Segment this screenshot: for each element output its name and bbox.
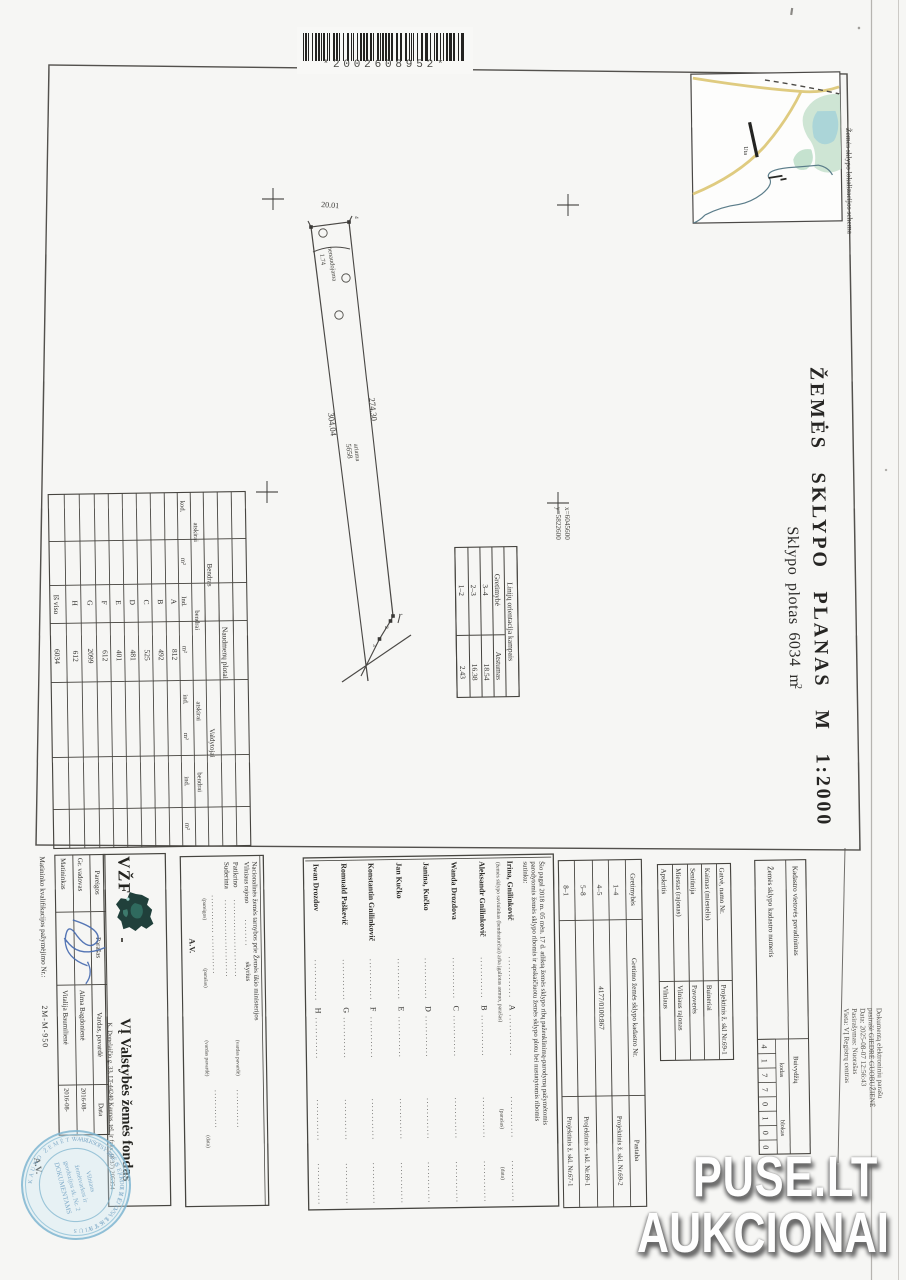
- svg-text:Wanda Drozdova: Wanda Drozdova: [449, 862, 459, 920]
- svg-text:Nacionalinės žemės tarnybos pr: Nacionalinės žemės tarnybos prie Žemės ū…: [250, 861, 261, 1020]
- svg-text:F: F: [369, 1007, 378, 1012]
- svg-text:Vilniaus rajono: Vilniaus rajono: [242, 862, 250, 904]
- svg-text:. . . . . . . . . . . .: . . . . . . . . . . . .: [509, 1097, 518, 1139]
- svg-text:. . . . . . . . . . . .: . . . . . . . . . . . .: [213, 1090, 221, 1129]
- svg-text:(vardas pavardė): (vardas pavardė): [234, 1040, 242, 1076]
- svg-text:274.30: 274.30: [367, 397, 380, 421]
- svg-text:2: 2: [792, 684, 803, 689]
- svg-text:Linijų orientacija kampais: Linijų orientacija kampais: [505, 582, 515, 661]
- svg-text:x=6045600: x=6045600: [563, 507, 571, 540]
- svg-text:Atstumas: Atstumas: [494, 652, 503, 681]
- svg-text:G: G: [85, 600, 94, 606]
- svg-text:2016-08-: 2016-08-: [62, 1088, 69, 1112]
- svg-text:Uta: Uta: [742, 146, 748, 155]
- svg-text:. . . . . . . . . . . . . . .: . . . . . . . . . . . . . . . . . . . . …: [232, 900, 240, 978]
- svg-text:8–1: 8–1: [562, 885, 570, 896]
- svg-text:(data): (data): [499, 1167, 506, 1180]
- svg-text:Vardas, pavardė: Vardas, pavardė: [95, 1012, 104, 1057]
- svg-text:481: 481: [129, 650, 138, 662]
- svg-text:(vardas pavardė): (vardas pavardė): [203, 1040, 211, 1076]
- svg-text:Gretimybės: Gretimybės: [628, 873, 637, 906]
- svg-text:. . . . . . . . . . . .: . . . . . . . . . . . .: [397, 1016, 406, 1058]
- svg-text:Seniūnija: Seniūnija: [689, 868, 697, 895]
- svg-text:B: B: [480, 1005, 489, 1010]
- svg-text:Gretimo žemės sklypo kadastro: Gretimo žemės sklypo kadastro Nr.: [630, 958, 640, 1057]
- svg-text:Kadastro vietovės pavadinimas: Kadastro vietovės pavadinimas: [791, 866, 800, 956]
- svg-text:D: D: [128, 599, 137, 605]
- svg-text:. . . . . . . . . . . .: . . . . . . . . . . . .: [316, 1164, 325, 1206]
- svg-text:304.04: 304.04: [326, 412, 339, 437]
- svg-text:(parašas): (parašas): [498, 1109, 505, 1129]
- svg-text:Konstantin Gnilinkovič: Konstantin Gnilinkovič: [366, 863, 376, 942]
- svg-text:3–4: 3–4: [481, 584, 490, 596]
- svg-text:Apskritis: Apskritis: [660, 868, 668, 894]
- svg-text:1: 1: [397, 613, 403, 616]
- svg-text:. . . . . . . . . . . .: . . . . . . . . . . . .: [370, 1099, 379, 1141]
- svg-text:Data: Data: [97, 1103, 105, 1117]
- svg-text:. . . . . . . . . . . . . . .: . . . . . . . . . . . . . . . . . . . . …: [223, 900, 231, 978]
- svg-text:. . . . . . . . . . . . . . .: . . . . . . . . . . . . . . . . . . . . …: [210, 895, 218, 975]
- svg-text:7: 7: [760, 1073, 769, 1077]
- svg-text:0: 0: [760, 1102, 769, 1106]
- svg-text:Suderinta: Suderinta: [222, 862, 230, 890]
- svg-text:20.01: 20.01: [321, 200, 340, 210]
- svg-text:blokas: blokas: [779, 1120, 786, 1137]
- svg-text:3: 3: [371, 644, 377, 647]
- svg-text:Matininkas: Matininkas: [59, 858, 67, 890]
- svg-text:Pavoverės: Pavoverės: [690, 985, 698, 1014]
- svg-text:. . . . . . . . . . . .: . . . . . . . . . . . .: [369, 1017, 378, 1059]
- svg-text:Žemės sklypo lokalizacijos sch: Žemės sklypo lokalizacijos schema: [844, 128, 856, 235]
- svg-text:1: 1: [761, 1116, 770, 1120]
- svg-text:skyrius: skyrius: [244, 962, 251, 982]
- svg-text:. . . . . . . .: . . . . . . . .: [243, 920, 250, 947]
- svg-text:Gr. vadovas: Gr. vadovas: [76, 858, 85, 892]
- svg-text:C: C: [142, 599, 151, 604]
- svg-text:G: G: [342, 1007, 351, 1013]
- svg-text:. . . . . . . . . . . .: . . . . . . . . . . . .: [315, 1100, 324, 1142]
- svg-text:. . . . . . . . . . . .: . . . . . . . . . . . .: [368, 959, 377, 1001]
- svg-text:y=5822600: y=5822600: [554, 507, 562, 540]
- svg-text:Sklypo plotas 6034 m: Sklypo plotas 6034 m: [784, 526, 804, 687]
- svg-text:. . . . . . . . . . . .: . . . . . . . . . . . .: [454, 1162, 463, 1204]
- svg-text:sutinku:: sutinku:: [521, 861, 528, 883]
- svg-text:. . . . . . . . . . . .: . . . . . . . . . . . .: [426, 1162, 435, 1204]
- svg-text:Buivydžių: Buivydžių: [792, 1056, 799, 1084]
- svg-text:Iwan Drozdov: Iwan Drozdov: [311, 864, 321, 912]
- svg-text:812: 812: [170, 649, 179, 661]
- svg-text:(pareigos): (pareigos): [201, 898, 208, 920]
- svg-text:Patikrino: Patikrino: [231, 862, 239, 888]
- svg-text:Žemės sklypo kadastro numeris: Žemės sklypo kadastro numeris: [766, 866, 777, 958]
- svg-text:atskirai: atskirai: [195, 701, 202, 721]
- svg-text:1.74: 1.74: [318, 253, 327, 266]
- svg-text:Vilniaus rajonas: Vilniaus rajonas: [676, 985, 685, 1031]
- svg-text:m²: m²: [181, 646, 188, 653]
- svg-text:Valdytojai: Valdytojai: [208, 729, 216, 758]
- svg-text:Projektinis ž. skl Nr.69-1: Projektinis ž. skl Nr.69-1: [719, 985, 728, 1056]
- svg-text:Gretimybė: Gretimybė: [493, 574, 503, 607]
- svg-text:(data): (data): [205, 1135, 212, 1148]
- svg-text:Iš viso: Iš viso: [52, 594, 61, 614]
- svg-text:Aleksandr Gnilinkovič: Aleksandr Gnilinkovič: [477, 861, 487, 937]
- svg-text:2099: 2099: [86, 648, 95, 663]
- svg-text:. . . . . . . . . . . .: . . . . . . . . . . . .: [343, 1099, 352, 1141]
- svg-text:7: 7: [760, 1088, 769, 1092]
- svg-text:18.54: 18.54: [482, 664, 491, 681]
- svg-text:m²: m²: [183, 823, 190, 830]
- svg-text:. . . . . . . . . . . .: . . . . . . . . . . . .: [508, 1015, 517, 1057]
- svg-text:B: B: [156, 599, 165, 604]
- svg-text:(žemės sklypo savininkas (bend: (žemės sklypo savininkas (bendraturčiai)…: [494, 862, 504, 1023]
- svg-text:5–8: 5–8: [579, 885, 587, 896]
- svg-text:H: H: [314, 1008, 323, 1014]
- svg-text:492: 492: [157, 649, 166, 661]
- svg-text:nenaudojama: nenaudojama: [326, 246, 338, 281]
- svg-text:. . . . . . . . . . . .: . . . . . . . . . . . .: [510, 1161, 519, 1203]
- svg-text:A: A: [508, 1005, 517, 1011]
- svg-text:VŽF: VŽF: [114, 856, 134, 895]
- svg-text:D: D: [424, 1006, 433, 1012]
- svg-text:. . . . . . . . . . . .: . . . . . . . . . . . .: [344, 1163, 353, 1205]
- svg-text:4: 4: [760, 1044, 769, 1048]
- svg-text:. . . . . . . . . . . .: . . . . . . . . . . . .: [341, 959, 350, 1001]
- svg-text:Buineriai: Buineriai: [705, 985, 713, 1011]
- svg-text:. . . . . . . . . . . .: . . . . . . . . . . . .: [424, 1016, 433, 1058]
- svg-text:(parašas): (parašas): [202, 968, 209, 988]
- svg-text:Vieta: VĮ Registrų centras: Vieta: VĮ Registrų centras: [842, 1008, 851, 1083]
- svg-text:. . . . . . . . . . . .: . . . . . . . . . . . .: [423, 958, 432, 1000]
- svg-text:H: H: [70, 600, 79, 606]
- svg-text:m²: m²: [182, 733, 189, 740]
- svg-text:4177/0100:867: 4177/0100:867: [597, 986, 606, 1030]
- svg-text:1–2: 1–2: [457, 585, 466, 597]
- svg-text:4–5: 4–5: [595, 885, 603, 896]
- svg-text:A: A: [169, 599, 178, 605]
- svg-text:2.43: 2.43: [458, 666, 467, 680]
- svg-text:. . . . . . . . . . . .: . . . . . . . . . . . .: [479, 957, 488, 999]
- svg-text:Miestas (rajonas): Miestas (rajonas): [674, 868, 683, 917]
- svg-text:ind.: ind.: [183, 776, 190, 787]
- svg-text:Vitalija Baumilienė: Vitalija Baumilienė: [61, 990, 70, 1045]
- svg-text:. . . . . . . . . . . .: . . . . . . . . . . . .: [453, 1098, 462, 1140]
- svg-text:ind.: ind.: [181, 694, 188, 705]
- svg-text:. . . . . . . . . . . .: . . . . . . . . . . . .: [342, 1017, 351, 1059]
- svg-text:bendrai: bendrai: [193, 610, 200, 630]
- svg-text:. . . . . . . . . . . .: . . . . . . . . . . . .: [399, 1162, 408, 1204]
- svg-text:401: 401: [115, 650, 124, 662]
- svg-text:E: E: [114, 600, 123, 605]
- svg-text:1: 1: [760, 1059, 769, 1063]
- svg-text:E: E: [397, 1006, 406, 1011]
- svg-text:ŽEMĖS SKLYPO PLANAS M 1:2000: ŽEMĖS SKLYPO PLANAS M 1:2000: [805, 367, 836, 828]
- svg-text:16.38: 16.38: [470, 664, 479, 681]
- svg-text:2: 2: [383, 626, 389, 629]
- svg-text:atskirai: atskirai: [192, 523, 199, 543]
- svg-text:2016-08-: 2016-08-: [79, 1088, 86, 1112]
- svg-text:. . . . . . . . . . . .: . . . . . . . . . . . .: [398, 1098, 407, 1140]
- svg-text:Naudmenų plotai: Naudmenų plotai: [220, 627, 230, 679]
- svg-text:Alma Bagdonienė: Alma Bagdonienė: [78, 990, 87, 1041]
- svg-text:612: 612: [71, 650, 80, 662]
- svg-text:kod.: kod.: [178, 501, 185, 513]
- svg-text:. . . . . . . . . . . .: . . . . . . . . . . . .: [482, 1161, 491, 1203]
- svg-text:Kaimas (miestelis): Kaimas (miestelis): [703, 868, 712, 921]
- svg-text:C: C: [452, 1006, 461, 1011]
- svg-text:Janina, Kučko: Janina, Kučko: [421, 862, 431, 911]
- svg-text:6034: 6034: [53, 649, 62, 664]
- svg-text:F: F: [100, 601, 109, 605]
- svg-text:. . . . . . . . . . . .: . . . . . . . . . . . .: [235, 1090, 243, 1129]
- svg-text:525: 525: [143, 649, 152, 661]
- svg-text:Ind.: Ind.: [180, 596, 187, 607]
- svg-text:kodas: kodas: [778, 1063, 785, 1078]
- svg-text:A.V.: A.V.: [188, 938, 197, 953]
- svg-text:4: 4: [353, 216, 359, 219]
- svg-text:bendrai: bendrai: [196, 772, 203, 792]
- svg-text:Jan Kučko: Jan Kučko: [394, 862, 404, 898]
- svg-text:Bendras: Bendras: [205, 564, 213, 587]
- svg-text:Romuald Paškevič: Romuald Paškevič: [339, 863, 349, 925]
- svg-text:. . . . . . . . . . . .: . . . . . . . . . . . .: [452, 1016, 461, 1058]
- svg-text:. . . . . . . . . . . .: . . . . . . . . . . . .: [313, 960, 322, 1002]
- svg-text:. . . . . . . . . . . .: . . . . . . . . . . . .: [481, 1097, 490, 1139]
- svg-text:Matininko kvalifikacijos pažym: Matininko kvalifikacijos pažymėjimo Nr.:: [38, 856, 48, 977]
- svg-text:0: 0: [761, 1131, 770, 1135]
- svg-text:m²: m²: [179, 558, 186, 565]
- svg-text:. . . . . . . . . . . .: . . . . . . . . . . . .: [451, 958, 460, 1000]
- svg-text:. . . . . . . . . . . .: . . . . . . . . . . . .: [396, 958, 405, 1000]
- svg-text:. . . . . . . . . . . .: . . . . . . . . . . . .: [425, 1098, 434, 1140]
- svg-text:. . . . . . . . . . . .: . . . . . . . . . . . .: [314, 1018, 323, 1060]
- svg-text:. . . . . . . . . . . .: . . . . . . . . . . . .: [480, 1015, 489, 1057]
- svg-text:2–3: 2–3: [469, 585, 478, 597]
- svg-text:Pareigos: Pareigos: [93, 870, 101, 895]
- svg-text:2M-M-950: 2M-M-950: [40, 1005, 50, 1048]
- svg-text:Gatvė, namo Nr.: Gatvė, namo Nr.: [718, 868, 727, 915]
- svg-text:1–4: 1–4: [612, 884, 620, 895]
- svg-text:Irina, Gnilinkovič: Irina, Gnilinkovič: [505, 861, 515, 921]
- svg-text:5658: 5658: [344, 443, 355, 459]
- svg-text:. . . . . . . . . . . .: . . . . . . . . . . . .: [507, 957, 516, 999]
- svg-text:Vilniaus: Vilniaus: [661, 985, 669, 1009]
- svg-text:612: 612: [101, 650, 110, 662]
- svg-text:. . . . . . . . . . . .: . . . . . . . . . . . .: [371, 1163, 380, 1205]
